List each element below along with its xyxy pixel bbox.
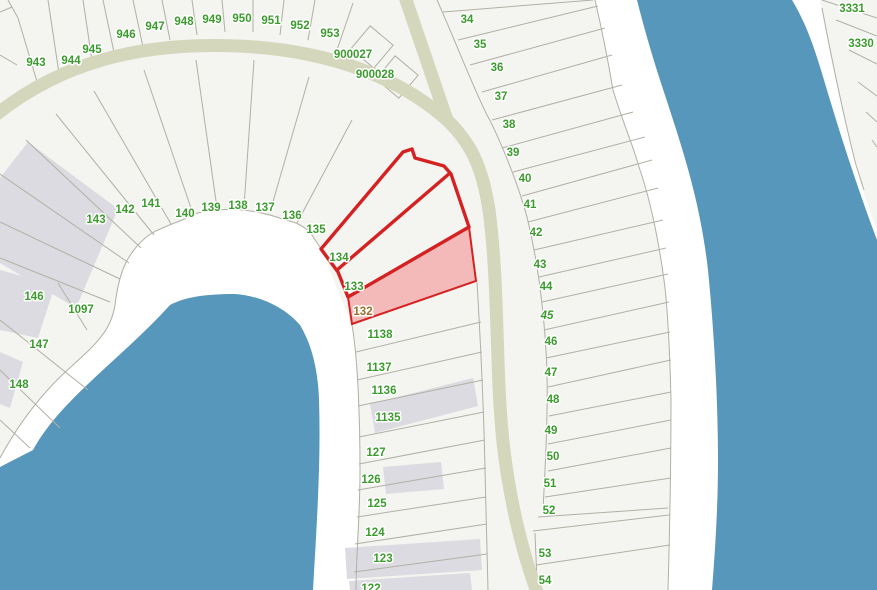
parcel-label-3331[interactable]: 3331 (839, 3, 865, 15)
parcel-label-900028[interactable]: 900028 (356, 69, 395, 81)
parcel-label-143[interactable]: 143 (86, 214, 105, 226)
parcel-label-42[interactable]: 42 (530, 227, 543, 239)
parcel-label-147[interactable]: 147 (29, 339, 48, 351)
parcel-label-38[interactable]: 38 (503, 119, 516, 131)
parcel-label-49[interactable]: 49 (545, 425, 558, 437)
parcel-label-944[interactable]: 944 (61, 55, 81, 67)
parcel-label-37[interactable]: 37 (495, 91, 508, 103)
parcel-label-141[interactable]: 141 (141, 198, 161, 210)
parcel-label-54[interactable]: 54 (539, 575, 552, 587)
parcel-label-953[interactable]: 953 (320, 28, 339, 40)
parcel-label-1136[interactable]: 1136 (372, 385, 397, 397)
parcel-label-53[interactable]: 53 (539, 548, 552, 560)
parcel-label-126[interactable]: 126 (361, 474, 380, 486)
parcel-label-52[interactable]: 52 (543, 505, 556, 517)
parcel-label-945[interactable]: 945 (82, 44, 102, 56)
parcel-label-142[interactable]: 142 (115, 204, 134, 216)
parcel-label-952[interactable]: 952 (290, 20, 309, 32)
parcel-label-50[interactable]: 50 (547, 451, 560, 463)
parcel-map-canvas[interactable]: 9439449459469479489499509519529539000279… (0, 0, 877, 590)
parcel-label-139[interactable]: 139 (201, 202, 220, 214)
parcel-label-148[interactable]: 148 (9, 379, 29, 391)
building (383, 462, 444, 494)
parcel-label-137[interactable]: 137 (255, 202, 274, 214)
parcel-label-1137[interactable]: 1137 (367, 362, 392, 374)
parcel-label-1135[interactable]: 1135 (376, 412, 402, 424)
parcel-label-125[interactable]: 125 (367, 498, 387, 510)
parcel-map-viewport[interactable]: 9439449459469479489499509519529539000279… (0, 0, 877, 590)
parcel-label-34[interactable]: 34 (461, 14, 474, 26)
parcel-label-39[interactable]: 39 (507, 147, 520, 159)
parcel-label-127[interactable]: 127 (366, 447, 385, 459)
parcel-label-946[interactable]: 946 (116, 29, 135, 41)
parcel-label-133[interactable]: 133 (344, 281, 363, 293)
parcel-label-123[interactable]: 123 (373, 553, 392, 565)
parcel-label-1138[interactable]: 1138 (368, 329, 394, 341)
parcel-label-35[interactable]: 35 (474, 39, 487, 51)
parcel-label-40[interactable]: 40 (519, 173, 532, 185)
parcel-label-136[interactable]: 136 (282, 210, 301, 222)
parcel-label-949[interactable]: 949 (202, 14, 221, 26)
parcel-label-3330[interactable]: 3330 (848, 38, 874, 50)
parcel-label-951[interactable]: 951 (261, 15, 281, 27)
parcel-label-41[interactable]: 41 (524, 199, 537, 211)
parcel-label-948[interactable]: 948 (174, 16, 194, 28)
parcel-label-132[interactable]: 132 (353, 306, 372, 318)
parcel-label-950[interactable]: 950 (232, 13, 251, 25)
parcel-label-45[interactable]: 45 (540, 310, 554, 322)
parcel-label-1097[interactable]: 1097 (68, 304, 94, 316)
parcel-label-48[interactable]: 48 (547, 394, 560, 406)
parcel-label-134[interactable]: 134 (329, 252, 349, 264)
parcel-label-138[interactable]: 138 (228, 200, 248, 212)
parcel-label-947[interactable]: 947 (145, 21, 164, 33)
parcel-label-900027[interactable]: 900027 (334, 49, 372, 61)
parcel-label-46[interactable]: 46 (545, 336, 558, 348)
parcel-label-44[interactable]: 44 (540, 281, 553, 293)
parcel-label-43[interactable]: 43 (534, 259, 547, 271)
parcel-label-124[interactable]: 124 (365, 527, 385, 539)
parcel-label-122[interactable]: 122 (361, 583, 380, 590)
parcel-label-47[interactable]: 47 (545, 367, 558, 379)
parcel-label-135[interactable]: 135 (306, 224, 326, 236)
parcel-label-943[interactable]: 943 (26, 57, 45, 69)
parcel-label-51[interactable]: 51 (544, 478, 557, 490)
parcel-label-146[interactable]: 146 (24, 291, 43, 303)
parcel-label-36[interactable]: 36 (491, 62, 504, 74)
parcel-label-140[interactable]: 140 (175, 208, 194, 220)
